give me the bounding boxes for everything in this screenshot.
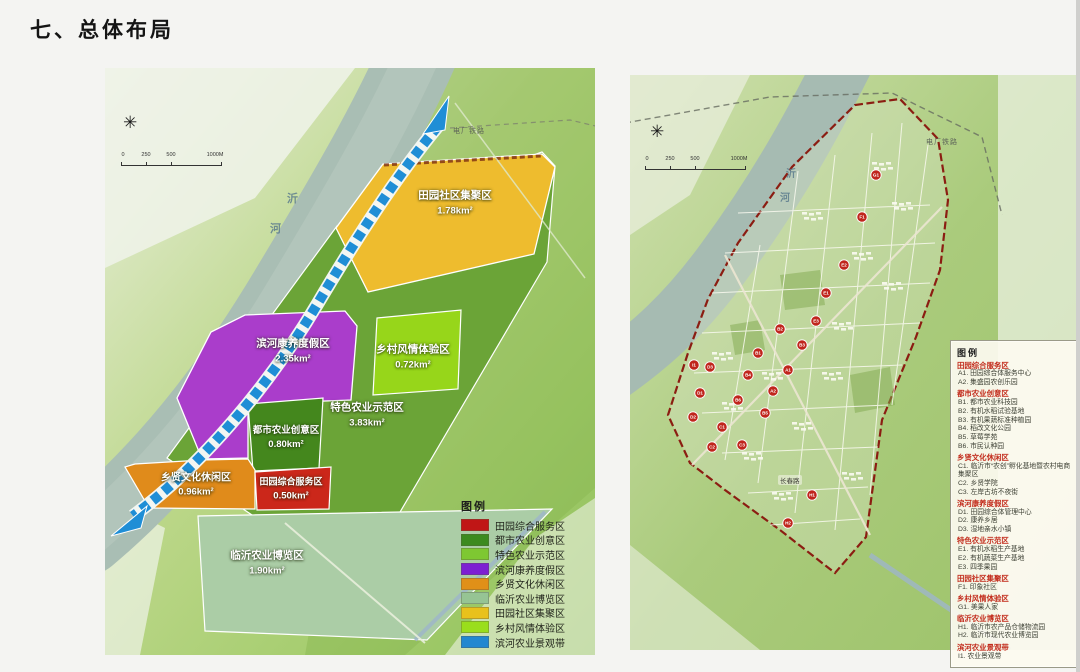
site-marker-E1: E1 — [821, 288, 831, 298]
svg-text:B6: B6 — [735, 398, 741, 403]
page-title: 七、总体布局 — [30, 14, 174, 44]
svg-text:B4: B4 — [745, 373, 751, 378]
site-marker-B4: B4 — [743, 370, 753, 380]
site-marker-C1: C1 — [717, 422, 727, 432]
svg-text:B5: B5 — [762, 411, 768, 416]
site-marker-H1: H1 — [807, 490, 817, 500]
svg-text:D1: D1 — [697, 391, 703, 396]
site-marker-G1: G1 — [871, 170, 881, 180]
svg-text:B3: B3 — [799, 343, 805, 348]
site-marker-E3: E3 — [811, 316, 821, 326]
layout-map-canvas: A1A2B1B2B3B4B5B6C1C2C3D1D2D3E1E2E3F1G1H1… — [630, 75, 1080, 650]
svg-text:E2: E2 — [841, 263, 847, 268]
svg-text:H2: H2 — [785, 521, 791, 526]
svg-text:B2: B2 — [777, 327, 783, 332]
map-fade-edge — [998, 75, 1080, 650]
svg-text:D3: D3 — [707, 365, 713, 370]
legend-group-item: I1. 农业景观带 — [958, 653, 1072, 662]
svg-text:A1: A1 — [785, 368, 791, 373]
site-marker-D2: D2 — [688, 412, 698, 422]
site-marker-B3: B3 — [797, 340, 807, 350]
slide: 七、总体布局 — [0, 0, 1080, 672]
site-marker-D1: D1 — [695, 388, 705, 398]
svg-text:H1: H1 — [809, 493, 815, 498]
site-marker-B2: B2 — [775, 324, 785, 334]
zone-comprehensive-service — [255, 467, 331, 510]
window-edge — [1076, 0, 1080, 672]
site-marker-H2: H2 — [783, 518, 793, 528]
svg-text:F1: F1 — [859, 215, 865, 220]
svg-text:E1: E1 — [823, 291, 829, 296]
site-marker-E2: E2 — [839, 260, 849, 270]
svg-text:C2: C2 — [709, 445, 715, 450]
site-marker-C2: C2 — [707, 442, 717, 452]
site-marker-B5: B5 — [760, 408, 770, 418]
site-marker-A2: A2 — [768, 386, 778, 396]
zoning-map-canvas — [105, 68, 595, 655]
zone-rural-experience — [373, 310, 461, 395]
layout-map: A1A2B1B2B3B4B5B6C1C2C3D1D2D3E1E2E3F1G1H1… — [630, 75, 1080, 650]
svg-text:B1: B1 — [755, 351, 761, 356]
svg-text:C1: C1 — [719, 425, 725, 430]
site-marker-I1: I1 — [689, 360, 699, 370]
site-marker-B6: B6 — [733, 395, 743, 405]
site-marker-F1: F1 — [857, 212, 867, 222]
site-marker-D3: D3 — [705, 362, 715, 372]
svg-text:C3: C3 — [739, 443, 745, 448]
svg-text:D2: D2 — [690, 415, 696, 420]
site-marker-C3: C3 — [737, 440, 747, 450]
svg-text:I1: I1 — [692, 363, 696, 368]
svg-text:G1: G1 — [873, 173, 880, 178]
svg-text:A2: A2 — [770, 389, 776, 394]
zoning-map: ✳ 0 250 500 1000M 电厂铁路 沂 河 田园社区集聚区1.78km… — [105, 68, 595, 655]
site-marker-A1: A1 — [783, 365, 793, 375]
site-marker-B1: B1 — [753, 348, 763, 358]
svg-text:E3: E3 — [813, 319, 819, 324]
zone-urban-agri-creative — [248, 398, 323, 471]
